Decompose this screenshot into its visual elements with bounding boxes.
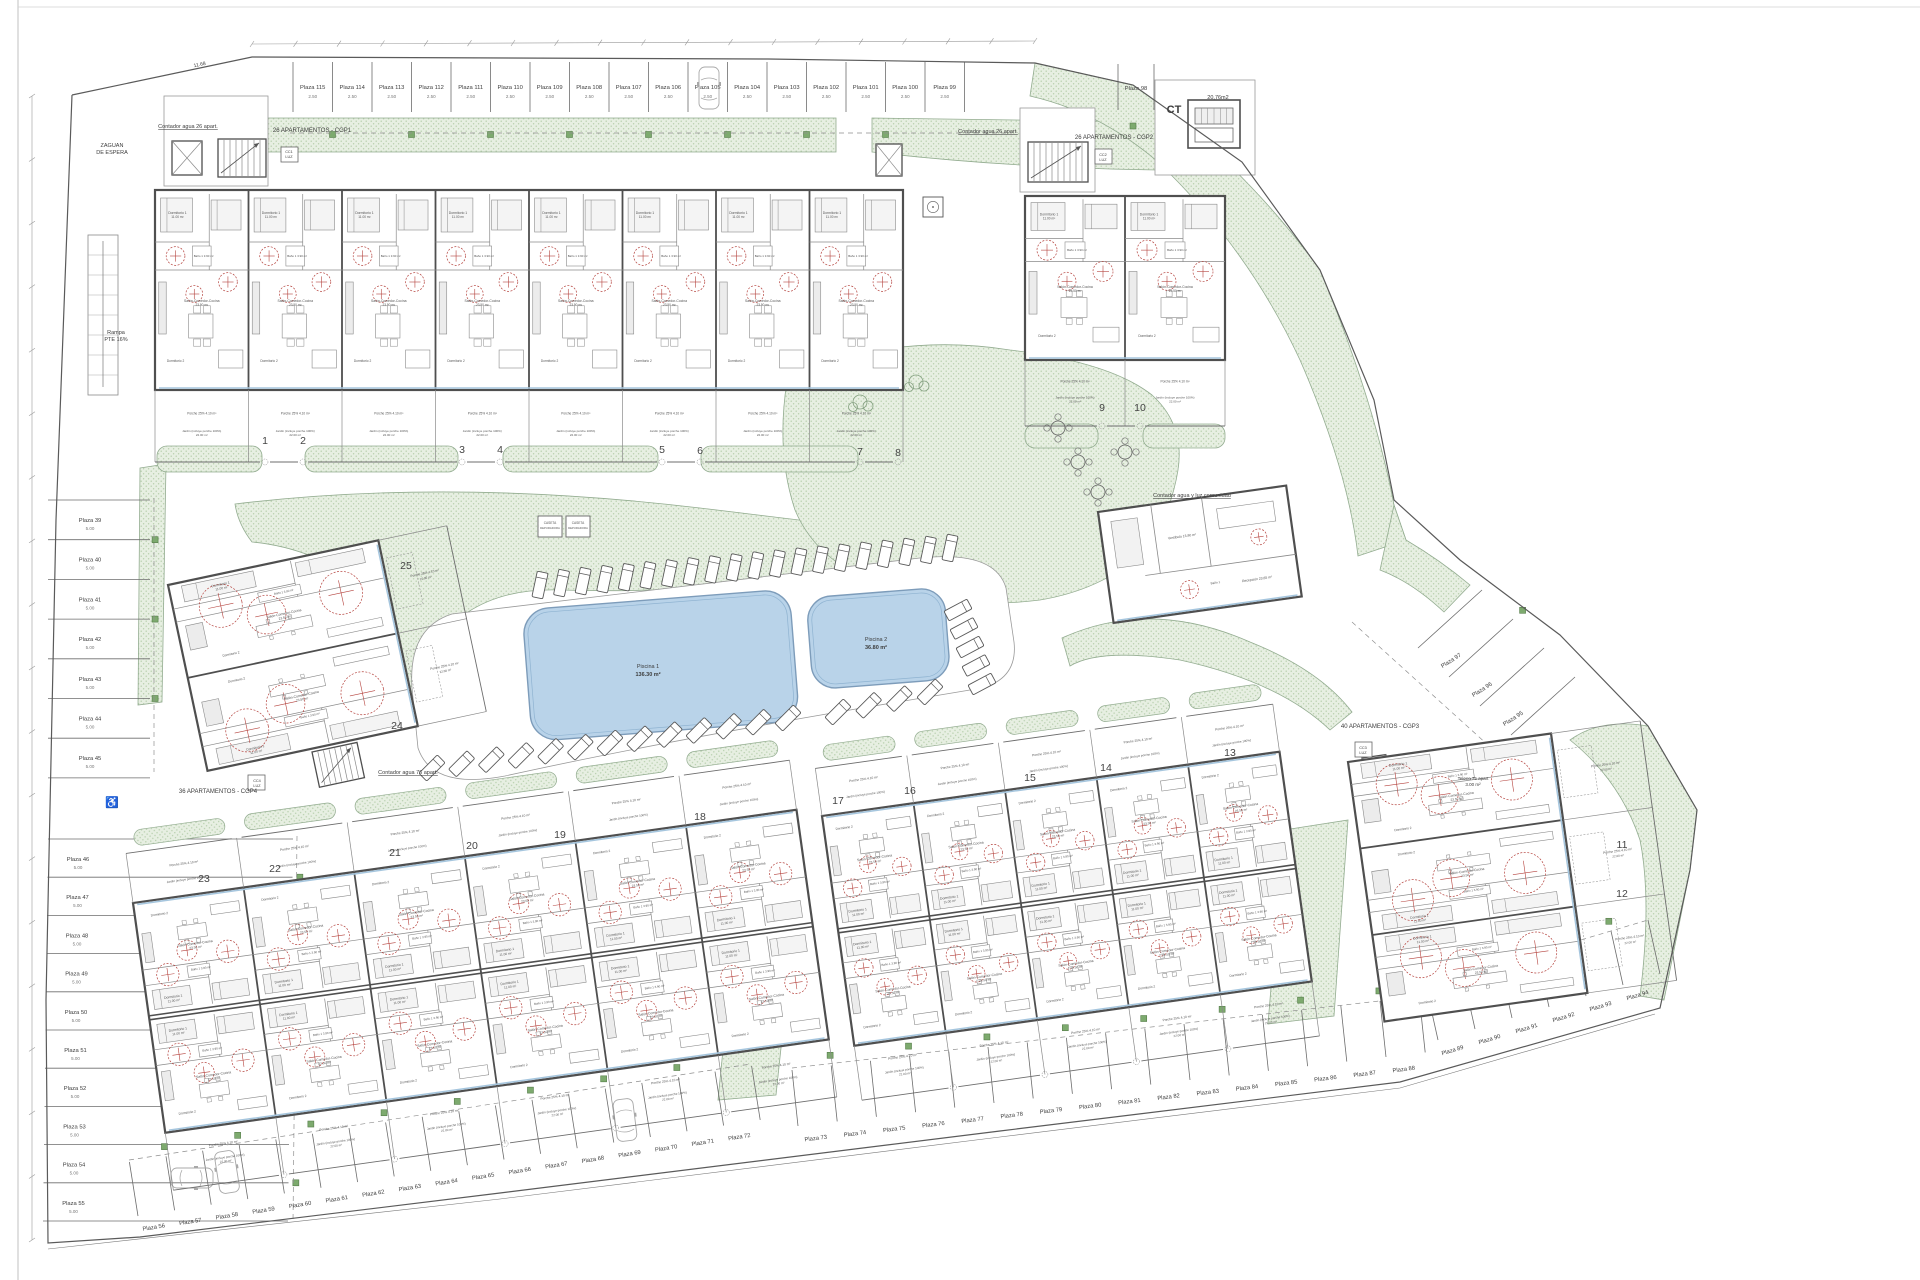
text-label: Porche 25% 4.10 m² bbox=[187, 411, 216, 415]
text-label: Porche 25% 4.10 m² bbox=[561, 411, 590, 415]
parking-stall-label: Plaza 74 bbox=[844, 1130, 868, 1139]
text-label: 11.00 m² bbox=[732, 215, 744, 219]
parking-stall-label: Plaza 53 bbox=[63, 1124, 86, 1130]
plan-label: Piscina 2 bbox=[865, 637, 887, 643]
text-label: Porche 25% 4.10 m² bbox=[979, 1040, 1008, 1048]
text-label: 22.00 m² bbox=[383, 433, 395, 437]
text-label: Dormitorio 2 bbox=[821, 359, 839, 363]
unit-number-label: 2 bbox=[300, 435, 306, 447]
text-label: Porche 25% 4.10 m² bbox=[842, 411, 871, 415]
parking-stall-label: Plaza 106 bbox=[655, 85, 681, 91]
unit-number-label: 14 bbox=[1100, 762, 1112, 774]
plan-label: 36 APARTAMENTOS - CGP4 bbox=[179, 789, 258, 795]
site-plan-page: Plaza 1152.50Plaza 1142.50Plaza 1132.50P… bbox=[0, 0, 1920, 1280]
plan-label: Contador agua y luz comunidad bbox=[1153, 493, 1231, 499]
parking-dim-label: 2.50 bbox=[506, 94, 515, 99]
text-label: CASETA bbox=[544, 521, 557, 525]
text-label: Porche 25% 4.10 m² bbox=[1032, 749, 1061, 757]
parking-dim-label: 2.50 bbox=[387, 94, 396, 99]
parking-stall-label: Plaza 81 bbox=[1118, 1098, 1141, 1107]
plan-label: DE ESPERA bbox=[96, 150, 128, 156]
text-label: 22.00 m² bbox=[757, 433, 769, 437]
parking-stall-label: Plaza 94 bbox=[1626, 990, 1650, 1003]
ramp bbox=[88, 235, 118, 395]
unit-number-label: 16 bbox=[904, 785, 916, 797]
elevator bbox=[876, 144, 902, 176]
text-label: 22.00 m² bbox=[663, 433, 675, 437]
text-label: Porche 25% 4.10 m² bbox=[374, 411, 403, 415]
parking-stall-label: Plaza 63 bbox=[398, 1184, 421, 1193]
text-label: Porche 25% 4.10 m² bbox=[390, 828, 419, 836]
parking-dim-label: 2.50 bbox=[822, 94, 831, 99]
text-label: 22.00 m² bbox=[330, 1143, 342, 1149]
text-label: Jardín (incluye porche 100%) bbox=[1121, 751, 1160, 760]
text-label: DEPURADORA bbox=[568, 526, 588, 530]
parking-stall-label: Plaza 42 bbox=[79, 637, 102, 643]
building-d: Dormitorio 111.00 m²Baño 1 3.90 m²Salón-… bbox=[123, 738, 837, 1193]
text-label: Jardín (incluye porche 100%) bbox=[938, 777, 977, 786]
parking-dim-label: 5.00 bbox=[73, 941, 82, 946]
parking-stall-label: Plaza 84 bbox=[1236, 1084, 1260, 1093]
parking-stall-label: Plaza 89 bbox=[1441, 1045, 1464, 1057]
parking-stall-label: Plaza 103 bbox=[774, 85, 800, 91]
parking-dim-label: 5.00 bbox=[86, 566, 95, 571]
text-label: 22.00 m² bbox=[551, 1112, 563, 1118]
text-label: 11.00 m² bbox=[265, 215, 277, 219]
text-label: Dormitorio 2 bbox=[541, 359, 559, 363]
text-label: 22.00 m² bbox=[1612, 853, 1624, 859]
parking-stall-label: Plaza 47 bbox=[66, 895, 89, 901]
parking-dim-label: 2.50 bbox=[348, 94, 357, 99]
parking-stall-label: Plaza 80 bbox=[1079, 1102, 1102, 1111]
parking-stall-label: Plaza 101 bbox=[853, 85, 879, 91]
text-label: Baño 1 3.90 m² bbox=[755, 254, 775, 258]
text-label: Dormitorio 2 bbox=[1038, 334, 1056, 338]
text-label: Dormitorio 2 bbox=[354, 359, 372, 363]
text-label: 23.50 m² bbox=[1069, 289, 1082, 293]
plan-label: Piscina 1 bbox=[637, 664, 659, 670]
parking-dim-label: 2.50 bbox=[940, 94, 949, 99]
parking-dim-label: 5.00 bbox=[73, 903, 82, 908]
text-label: Dormitorio 2 bbox=[167, 359, 185, 363]
parking-stall-label: Plaza 66 bbox=[508, 1167, 531, 1176]
parking-dim-label: 5.00 bbox=[86, 605, 95, 610]
parking-stall-label: Plaza 55 bbox=[62, 1201, 85, 1207]
parking-dim-label: 2.50 bbox=[427, 94, 436, 99]
plan-label: CC4 bbox=[253, 779, 261, 783]
parking-stall-label: Plaza 65 bbox=[472, 1172, 495, 1181]
parking-stall-label: Plaza 91 bbox=[1515, 1023, 1538, 1035]
text-label: Porche 25% 4.10 m² bbox=[1071, 1027, 1100, 1035]
plan-label: 26 APARTAMENTOS - CGP2 bbox=[1075, 135, 1154, 141]
parking-dim-label: 5.00 bbox=[71, 1094, 80, 1099]
text-label: Porche 25% 4.10 m² bbox=[1162, 1014, 1191, 1022]
text-label: 22.00 m² bbox=[772, 1081, 784, 1087]
parking-stall-label: Plaza 39 bbox=[79, 518, 102, 524]
parking-dim-label: 5.00 bbox=[70, 1171, 79, 1176]
utility-box bbox=[923, 197, 943, 217]
plan-label: 3.00 m² bbox=[1465, 782, 1481, 787]
text-label: Porche 25% 4.10 m² bbox=[468, 411, 497, 415]
text-label: 11.00 m² bbox=[639, 215, 651, 219]
text-label: 22.00 m² bbox=[220, 1158, 232, 1164]
ct-transformer bbox=[1188, 100, 1240, 148]
plan-label: 11.68 bbox=[193, 61, 206, 69]
parking-stall-label: Plaza 70 bbox=[655, 1144, 678, 1153]
parking-stall-label: Plaza 85 bbox=[1275, 1079, 1298, 1088]
parking-stall-label: Plaza 56 bbox=[142, 1223, 165, 1232]
plan-label: 40 APARTAMENTOS - CGP3 bbox=[1341, 724, 1420, 730]
text-label: Porche 25% 4.10 m² bbox=[540, 1093, 569, 1101]
parking-dim-label: 2.50 bbox=[664, 94, 673, 99]
unit-number-label: 8 bbox=[895, 447, 901, 459]
unit-number-label: 3 bbox=[459, 444, 465, 456]
unit-number-label: 24 bbox=[391, 720, 403, 732]
text-label: Baño 1 3.90 m² bbox=[848, 254, 868, 258]
unit-number-label: 13 bbox=[1224, 747, 1236, 759]
unit-number-label: 4 bbox=[497, 444, 503, 456]
text-label: 11.00 m² bbox=[545, 215, 557, 219]
plan-label: CC3 bbox=[1359, 746, 1367, 750]
parking-stall-label: Plaza 71 bbox=[691, 1139, 714, 1148]
parking-stall-label: Plaza 115 bbox=[300, 85, 325, 91]
parking-stall-label: Plaza 82 bbox=[1157, 1093, 1180, 1102]
text-label: Porche 25% 4.10 m² bbox=[281, 411, 310, 415]
text-label: 22.00 m² bbox=[899, 1071, 911, 1077]
unit-number-label: 17 bbox=[832, 795, 844, 807]
unit-number-label: 1 bbox=[262, 435, 268, 447]
text-label: 23.50 m² bbox=[663, 303, 676, 307]
caseta-box: CASETADEPURADORA bbox=[566, 516, 590, 537]
parking-stall-label: Plaza 51 bbox=[64, 1048, 87, 1054]
text-label: CASETA bbox=[572, 521, 585, 525]
parking-dim-label: 2.50 bbox=[585, 94, 594, 99]
parking-dim-label: 2.50 bbox=[624, 94, 633, 99]
text-label: 23.50 m² bbox=[756, 303, 769, 307]
text-label: 23.50 m² bbox=[289, 303, 302, 307]
parking-stall-label: Plaza 64 bbox=[435, 1178, 459, 1188]
text-label: Dormitorio 2 bbox=[1138, 334, 1156, 338]
parking-stall-label: Plaza 49 bbox=[65, 972, 88, 978]
parking-stall-label: Plaza 108 bbox=[576, 85, 602, 91]
parking-stall-label: Plaza 102 bbox=[813, 85, 839, 91]
parking-stall-label: Plaza 113 bbox=[379, 85, 404, 91]
plan-label: ZAGUAN bbox=[101, 143, 124, 149]
text-label: Porche 25% 4.10 m² bbox=[1215, 724, 1244, 732]
text-label: Porche 25% 4.10 m² bbox=[611, 797, 640, 805]
text-label: Dormitorio 2 bbox=[634, 359, 652, 363]
parking-dim-label: 2.50 bbox=[545, 94, 554, 99]
parking-stall-label: Plaza 58 bbox=[215, 1212, 238, 1221]
parking-dim-label: 5.00 bbox=[86, 764, 95, 769]
text-label: 22.00 m² bbox=[1624, 940, 1636, 946]
green-area bbox=[1380, 505, 1470, 612]
text-label: Porche 25% 4.10 m² bbox=[430, 1108, 459, 1116]
parking-dim-label: 2.50 bbox=[901, 94, 910, 99]
text-label: 22.00 m² bbox=[1082, 1045, 1094, 1051]
text-label: Baño 1 3.90 m² bbox=[661, 254, 681, 258]
parking-dim-label: 5.00 bbox=[74, 865, 83, 870]
text-label: 11.00 m² bbox=[358, 215, 370, 219]
parking-stall-label: Plaza 72 bbox=[728, 1133, 751, 1142]
text-label: Porche 25% 4.10 m² bbox=[280, 844, 309, 852]
elevator bbox=[172, 141, 202, 175]
text-label: 22.00 m² bbox=[1265, 1020, 1277, 1026]
parking-stall-label: Plaza 78 bbox=[1000, 1112, 1023, 1121]
parking-stall-label: Plaza 88 bbox=[1392, 1066, 1415, 1075]
unit-number-label: 21 bbox=[389, 847, 401, 859]
parking-dim-label: 5.00 bbox=[86, 645, 95, 650]
text-label: 23.50 m² bbox=[382, 303, 395, 307]
plan-label: Rampa bbox=[107, 330, 126, 336]
plan-label: CC1 bbox=[285, 150, 293, 154]
plan-label: LUZ bbox=[285, 155, 293, 159]
text-label: Jardín (incluye porche 100%) bbox=[846, 790, 885, 799]
text-label: Jardín (incluye porche 100%) bbox=[498, 828, 537, 837]
parking-stall-label: Plaza 76 bbox=[922, 1121, 945, 1130]
parking-dim-label: 5.00 bbox=[69, 1209, 78, 1214]
unit-number-label: 20 bbox=[466, 840, 478, 852]
text-label: DEPURADORA bbox=[540, 526, 560, 530]
parking-stall-label: Plaza 111 bbox=[458, 85, 483, 91]
text-label: 11.00 m² bbox=[826, 215, 838, 219]
parking-dim-label: 2.50 bbox=[861, 94, 870, 99]
text-label: Baño 1 3.90 m² bbox=[287, 254, 307, 258]
parking-stall-label: Plaza 107 bbox=[616, 85, 642, 91]
parking-stall-label: Plaza 100 bbox=[892, 85, 918, 91]
text-label: Baño 1 3.90 m² bbox=[474, 254, 494, 258]
unit-number-label: 5 bbox=[659, 444, 665, 456]
plan-label: Contador agua 26 apart. bbox=[958, 129, 1018, 135]
parking-stall-label: Plaza 54 bbox=[63, 1163, 86, 1169]
text-label: Porche 25% 4.10 m² bbox=[655, 411, 684, 415]
parking-stall-label: Plaza 40 bbox=[79, 558, 102, 564]
text-label: Porche 25% 4.10 m² bbox=[319, 1124, 348, 1132]
parking-stall-label: Plaza 86 bbox=[1314, 1075, 1337, 1084]
text-label: Jardín (incluye porche 100%) bbox=[719, 797, 758, 806]
parking-stall-label: Plaza 44 bbox=[79, 717, 102, 723]
parking-dim-label: 5.00 bbox=[70, 1132, 79, 1137]
parking-stall-label: Plaza 75 bbox=[883, 1125, 906, 1134]
caseta-box: CASETADEPURADORA bbox=[538, 516, 562, 537]
plan-label: LUZ bbox=[1099, 158, 1107, 162]
text-label: Baño 1 3.90 m² bbox=[381, 254, 401, 258]
text-label: Baño 1 3.90 m² bbox=[1067, 248, 1087, 252]
plan-label: 20,76m2 bbox=[1207, 95, 1228, 101]
stair bbox=[218, 139, 266, 177]
text-label: 22.00 m² bbox=[476, 433, 488, 437]
text-label: 11.00 m² bbox=[171, 215, 183, 219]
text-label: 22.00 m² bbox=[1169, 399, 1181, 403]
parking-dim-label: 2.50 bbox=[703, 94, 712, 99]
parking-stall-label: Plaza 99 bbox=[933, 85, 956, 91]
unit-number-label: 15 bbox=[1024, 772, 1036, 784]
parking-stall-label: Plaza 93 bbox=[1589, 1001, 1612, 1013]
text-label: 22.00 m² bbox=[1173, 1032, 1185, 1038]
text-label: Dormitorio 2 bbox=[260, 359, 278, 363]
parking-dim-label: 2.50 bbox=[308, 94, 317, 99]
text-label: Porche 25% 4.10 m² bbox=[501, 813, 530, 821]
parking-stall-label: Plaza 61 bbox=[325, 1195, 348, 1204]
text-label: 23.50 m² bbox=[850, 303, 863, 307]
parking-dim-label: 2.50 bbox=[743, 94, 752, 99]
text-label: 11.00 m² bbox=[1043, 217, 1055, 221]
parking-stall-label: Plaza 90 bbox=[1478, 1034, 1501, 1046]
stair bbox=[312, 742, 364, 787]
plan-label: LUZ bbox=[1359, 751, 1367, 755]
text-label: Porche 25% 4.10 m² bbox=[169, 860, 198, 868]
unit-number-label: 7 bbox=[857, 446, 863, 458]
parking-dim-label: 5.00 bbox=[86, 526, 95, 531]
text-label: 23.50 m² bbox=[476, 303, 489, 307]
plan-label: 136.30 m² bbox=[635, 671, 660, 678]
building-e: Dormitorio 111.00 m²Baño 1 3.90 m²Salón-… bbox=[812, 682, 1320, 1103]
parking-stall-label: Plaza 112 bbox=[419, 85, 444, 91]
parking-dim-label: 5.00 bbox=[72, 1018, 81, 1023]
parking-stall-label: Plaza 109 bbox=[537, 85, 563, 91]
plan-label: LUZ bbox=[253, 784, 261, 788]
text-label: 22.00 m² bbox=[570, 433, 582, 437]
parking-stall-label: Plaza 73 bbox=[804, 1135, 827, 1144]
text-label: Porche 25% 4.10 m² bbox=[722, 782, 751, 790]
parking-stall-label: Plaza 62 bbox=[362, 1189, 385, 1198]
parking-stall-label: Plaza 45 bbox=[79, 756, 102, 762]
plan-label: 26 APARTAMENTOS - CGP1 bbox=[273, 128, 352, 134]
plan-label: CC2 bbox=[1099, 153, 1107, 157]
parking-stall-label: Plaza 114 bbox=[340, 85, 366, 91]
plan-label: CT bbox=[1167, 104, 1182, 116]
unit-number-label: 23 bbox=[198, 873, 210, 885]
parking-dim-label: 5.00 bbox=[86, 685, 95, 690]
text-label: 22.00 m² bbox=[662, 1096, 674, 1102]
parking-stall-label: Plaza 87 bbox=[1353, 1070, 1376, 1079]
parking-stall-label: Plaza 59 bbox=[252, 1206, 275, 1215]
parking-stall-label: Plaza 68 bbox=[581, 1155, 604, 1164]
plan-label: PTE 16% bbox=[104, 337, 127, 343]
parking-stall-label: Plaza 46 bbox=[67, 857, 90, 863]
unit-number-label: 10 bbox=[1134, 402, 1146, 414]
parking-dim-label: 2.50 bbox=[782, 94, 791, 99]
plan-label: 36.80 m² bbox=[865, 644, 887, 651]
text-label: 23.50 m² bbox=[195, 303, 208, 307]
text-label: 11.00 m² bbox=[1143, 217, 1155, 221]
plan-label: Contador agua 26 apart. bbox=[158, 124, 218, 130]
text-label: Porche 25% 4.10 m² bbox=[1160, 379, 1189, 383]
text-label: Dormitorio 2 bbox=[728, 359, 746, 363]
parking-stall-label: Plaza 57 bbox=[179, 1218, 202, 1227]
parking-stall-label: Plaza 50 bbox=[65, 1010, 88, 1016]
parking-stall-label: Plaza 110 bbox=[498, 85, 523, 91]
unit-number-label: 9 bbox=[1099, 402, 1105, 414]
parking-stall-label: Plaza 60 bbox=[289, 1201, 312, 1210]
text-label: Porche 25% 4.10 m² bbox=[940, 762, 969, 770]
text-label: 22.00 m² bbox=[1069, 399, 1081, 403]
text-label: 22.00 m² bbox=[441, 1127, 453, 1133]
parking-dim-label: 2.50 bbox=[466, 94, 475, 99]
text-label: Baño 1 3.90 m² bbox=[194, 254, 214, 258]
unit-number-label: 22 bbox=[269, 863, 281, 875]
stair bbox=[1028, 142, 1088, 182]
text-label: 22.00 m² bbox=[196, 433, 208, 437]
text-label: 22.00 m² bbox=[850, 433, 862, 437]
unit-number-label: 19 bbox=[554, 829, 566, 841]
unit-number-label: 18 bbox=[694, 811, 706, 823]
green-area bbox=[1570, 724, 1697, 1000]
text-label: Porche 25% 4.10 m² bbox=[1060, 379, 1089, 383]
text-label: Porche 25% 4.10 m² bbox=[849, 775, 878, 783]
text-label: 23.50 m² bbox=[569, 303, 582, 307]
disabled-parking-icon: ♿ bbox=[105, 796, 119, 809]
parking-stall-label: Plaza 104 bbox=[734, 85, 761, 91]
plan-label: Teleco 75 apart bbox=[1458, 776, 1490, 781]
unit-number-label: 11 bbox=[1617, 839, 1628, 851]
parking-stall-label: Plaza 83 bbox=[1196, 1089, 1219, 1098]
text-label: 23.50 m² bbox=[1169, 289, 1182, 293]
text-label: Porche 25% 4.10 m² bbox=[209, 1140, 238, 1148]
parking-stall-label: Plaza 48 bbox=[66, 933, 89, 939]
parking-stall-label: Plaza 77 bbox=[961, 1116, 984, 1125]
plan-label: Contador agua 76 apart. bbox=[378, 770, 438, 776]
site-plan-drawing: Plaza 1152.50Plaza 1142.50Plaza 1132.50P… bbox=[0, 0, 1920, 1280]
text-label: 11.00 m² bbox=[452, 215, 464, 219]
parking-stall-label: Plaza 92 bbox=[1552, 1012, 1575, 1024]
unit-number-label: 25 bbox=[400, 560, 412, 572]
parking-stall-label: Plaza 79 bbox=[1040, 1107, 1063, 1116]
parking-stall-label: Plaza 67 bbox=[545, 1161, 568, 1170]
parking-stall-label: Plaza 41 bbox=[79, 597, 102, 603]
text-label: Baño 1 3.90 m² bbox=[1167, 248, 1187, 252]
parking-stall-label: Plaza 69 bbox=[618, 1150, 641, 1159]
parking-dim-label: 5.00 bbox=[86, 725, 95, 730]
parking-stall-label: Plaza 52 bbox=[64, 1086, 87, 1092]
parking-dim-label: 5.00 bbox=[71, 1056, 80, 1061]
text-label: Porche 25% 4.10 m² bbox=[888, 1053, 917, 1061]
text-label: Dormitorio 2 bbox=[447, 359, 465, 363]
text-label: 22.00 m² bbox=[990, 1058, 1002, 1064]
unit-number-label: 12 bbox=[1616, 888, 1628, 900]
parking-dim-label: 5.00 bbox=[72, 980, 81, 985]
unit-number-label: 6 bbox=[697, 445, 703, 457]
text-label: Jardín (incluye porche 100%) bbox=[609, 813, 648, 822]
parking-stall-label: Plaza 43 bbox=[79, 677, 102, 683]
text-label: Porche 25% 4.10 m² bbox=[748, 411, 777, 415]
text-label: Baño 1 3.90 m² bbox=[568, 254, 588, 258]
text-label: Porche 25% 4.10 m² bbox=[1123, 737, 1152, 745]
